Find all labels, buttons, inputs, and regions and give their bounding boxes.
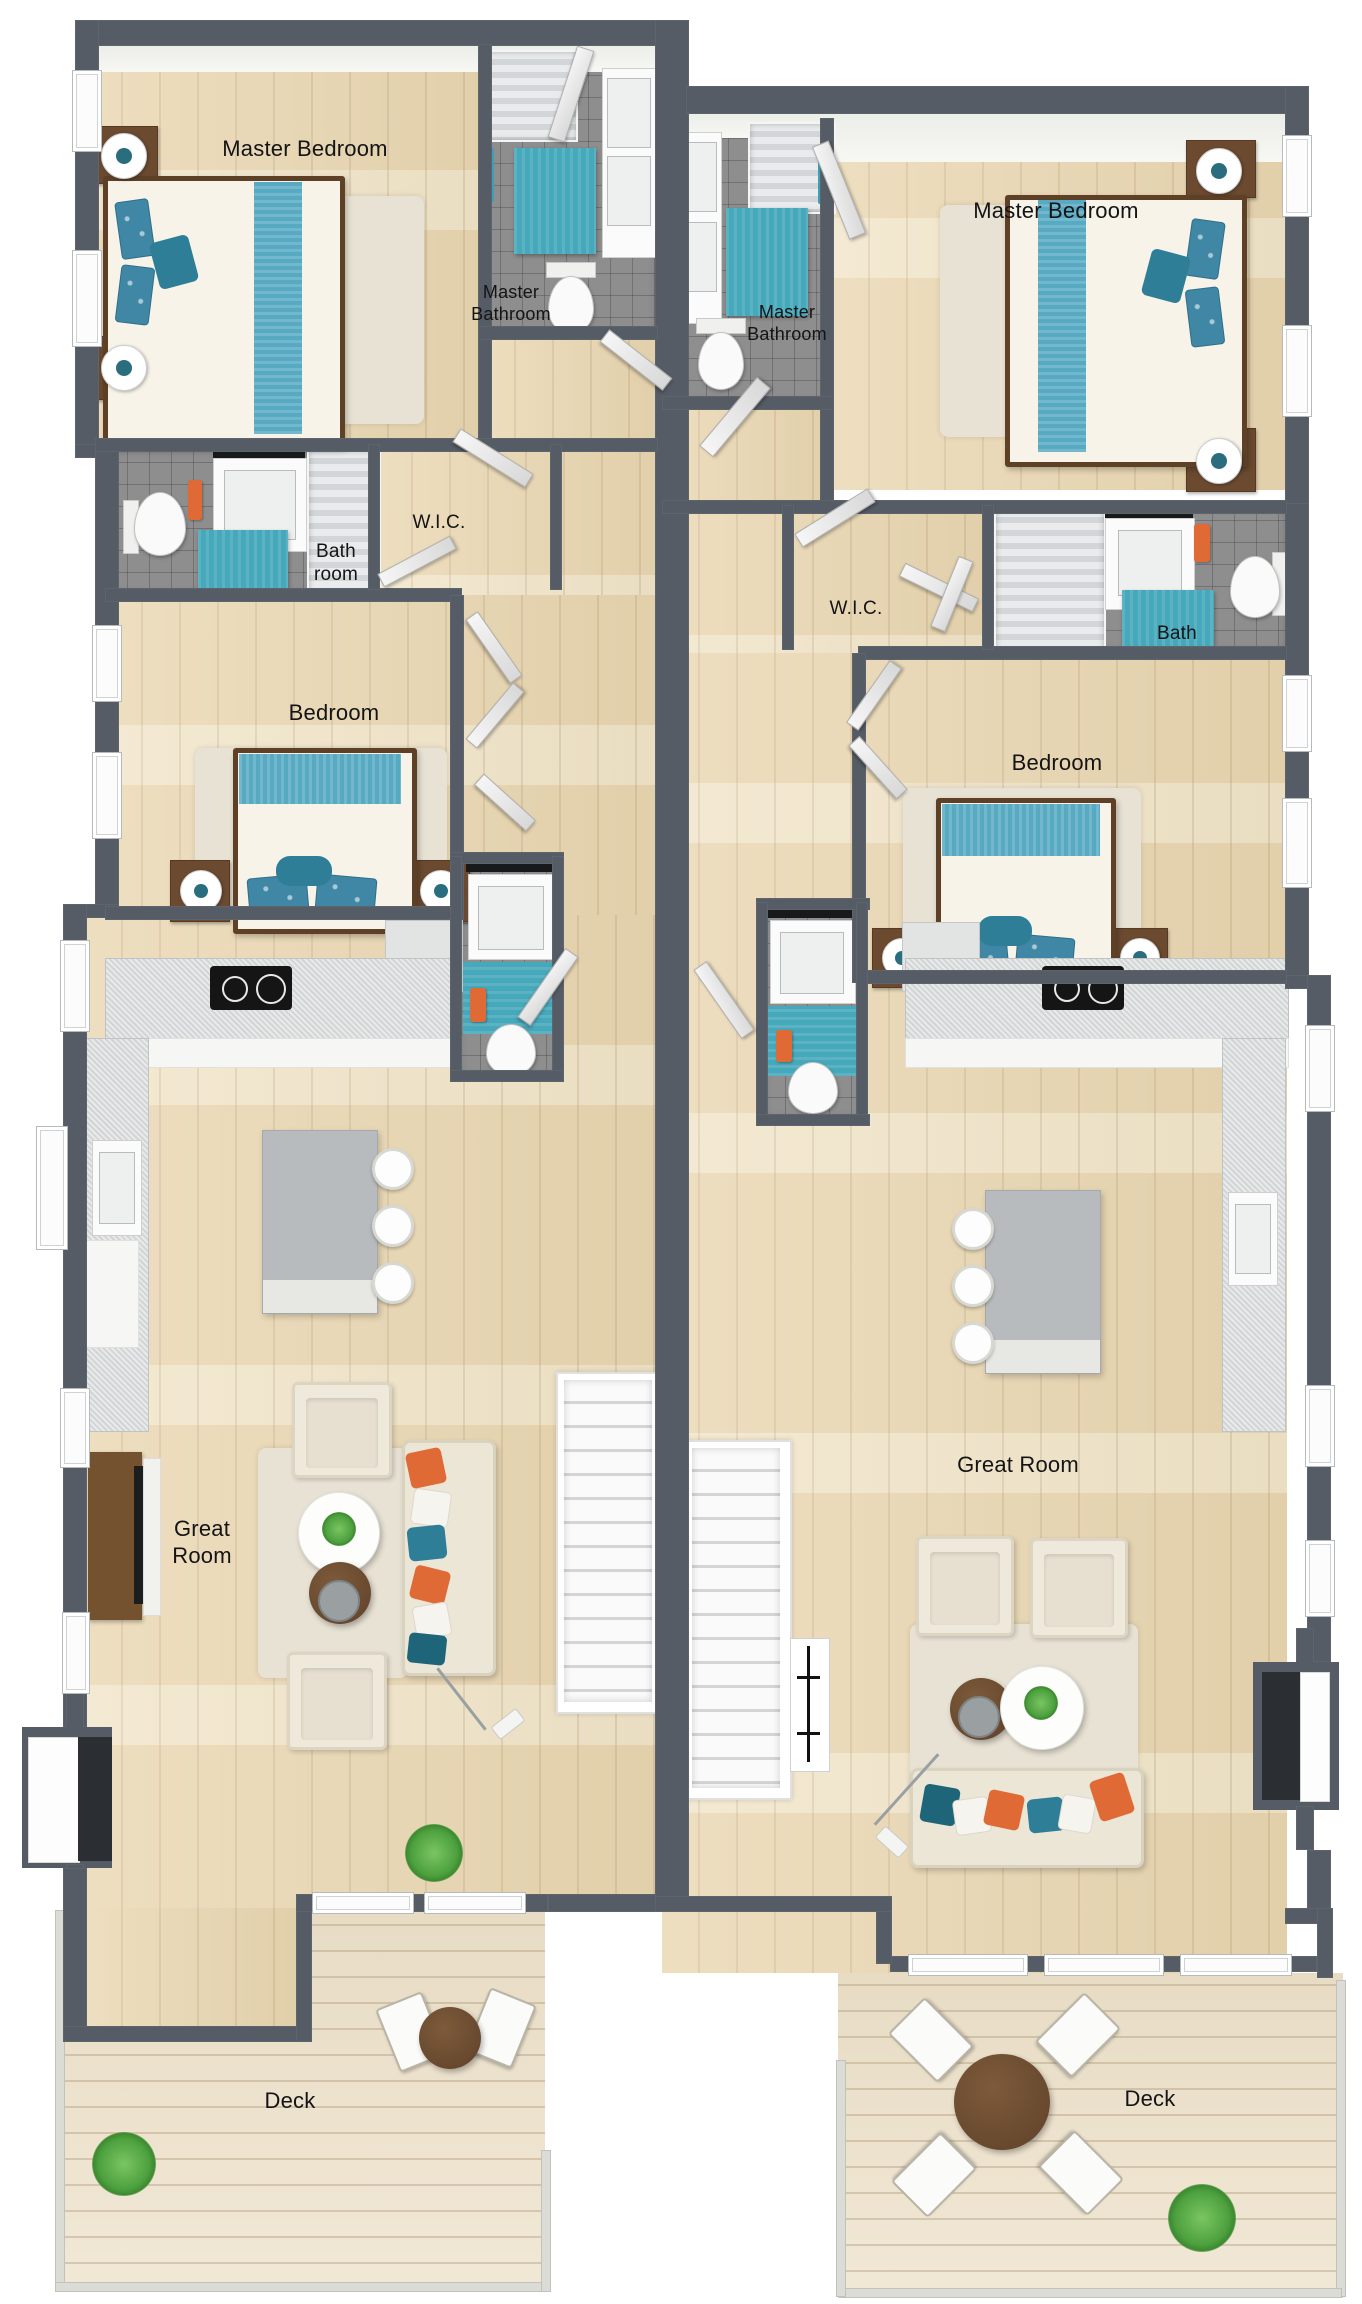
armchair <box>1030 1538 1128 1638</box>
bar-stool <box>952 1265 994 1307</box>
radiator-glyph <box>797 1676 820 1679</box>
window <box>72 70 102 152</box>
wall <box>66 1690 84 1730</box>
room-label-deck-left: Deck <box>240 2088 340 2115</box>
kitchen-island <box>985 1190 1101 1374</box>
tray <box>958 1696 1000 1738</box>
wall <box>105 906 460 920</box>
toilet <box>486 1024 536 1076</box>
deck-railing <box>840 2288 1342 2298</box>
toilet <box>788 1062 838 1114</box>
bar-stool <box>952 1322 994 1364</box>
bay-window-cavity <box>1262 1672 1302 1800</box>
room-label-wic-left: W.I.C. <box>394 511 484 534</box>
burner <box>256 974 286 1004</box>
window <box>424 1892 526 1914</box>
stair-treads <box>692 1448 780 1788</box>
bar-stool <box>952 1208 994 1250</box>
room-label-master-bathroom-right: Master Bathroom <box>730 302 844 346</box>
wall <box>756 898 870 910</box>
room-label-bath-room-left: Bath room <box>296 540 376 586</box>
bar-stool <box>372 1148 414 1190</box>
room-label-deck-right: Deck <box>1100 2086 1200 2113</box>
window <box>62 1612 90 1694</box>
tray <box>318 1580 360 1622</box>
wall <box>548 1894 658 1912</box>
towel <box>1194 524 1210 562</box>
sink <box>607 156 651 226</box>
toilet <box>134 492 186 556</box>
stair-treads <box>564 1380 652 1702</box>
pillow <box>406 1524 447 1562</box>
sink <box>478 886 544 950</box>
window <box>1305 1540 1335 1617</box>
deck-railing <box>1336 1980 1346 2297</box>
room-label-master-bathroom-left: Master Bathroom <box>455 282 567 326</box>
bay-window-cavity <box>78 1737 112 1861</box>
kitchen-cabinet <box>105 1038 459 1068</box>
floor-plan: Master Bedroom Master Bathroom Bath room… <box>0 0 1362 2304</box>
deck-railing <box>836 2060 846 2297</box>
window <box>60 1388 90 1468</box>
wall <box>296 1898 312 2042</box>
towel <box>470 988 486 1022</box>
wall <box>982 505 994 650</box>
window <box>92 752 122 839</box>
room-label-bedroom-right: Bedroom <box>977 750 1137 777</box>
pillow <box>1057 1793 1097 1834</box>
wall <box>662 500 1287 514</box>
room-label-great-room-left: Great Room <box>146 1516 258 1570</box>
wall <box>686 86 1287 114</box>
wall <box>450 856 462 1082</box>
window <box>60 940 90 1032</box>
tv-screen <box>134 1466 143 1604</box>
toilet <box>1230 556 1280 618</box>
wall <box>478 44 492 446</box>
sink <box>1118 530 1182 596</box>
radiator <box>790 1638 830 1772</box>
window <box>92 625 122 702</box>
radiator-glyph <box>797 1732 820 1735</box>
armchair <box>292 1382 392 1478</box>
armchair <box>916 1536 1014 1636</box>
bay-window-glass <box>28 1737 80 1863</box>
wall <box>1317 1908 1333 1978</box>
wall <box>856 902 868 1126</box>
bed-runner <box>254 182 302 434</box>
wall <box>782 505 794 650</box>
plant <box>322 1512 356 1546</box>
bed-runner <box>239 754 401 804</box>
sink <box>1235 1204 1271 1274</box>
table-lamp <box>1196 438 1242 484</box>
burner <box>222 976 248 1002</box>
shower <box>994 508 1106 654</box>
towel <box>188 480 202 520</box>
wall <box>105 588 462 602</box>
window <box>1282 798 1312 888</box>
sink <box>607 78 651 148</box>
wall <box>756 902 768 1126</box>
plant <box>1024 1686 1058 1720</box>
room-label-bath-right: Bath <box>1132 622 1222 645</box>
pillow <box>405 1447 448 1490</box>
pillow <box>1185 286 1226 348</box>
bath-rug <box>198 530 288 588</box>
window <box>1305 1025 1335 1112</box>
table-lamp <box>101 133 147 179</box>
party-wall <box>655 20 689 1912</box>
room-label-bedroom-left: Bedroom <box>254 700 414 727</box>
pillow <box>410 1488 453 1529</box>
room-label-wic-right: W.I.C. <box>811 597 901 620</box>
pillow <box>276 856 332 886</box>
window <box>36 1126 68 1250</box>
deck-railing <box>55 2282 551 2292</box>
window <box>908 1954 1028 1976</box>
bar-stool <box>372 1205 414 1247</box>
window <box>1282 325 1312 417</box>
wall <box>1296 1806 1314 1850</box>
room-label-master-bedroom-right: Master Bedroom <box>946 198 1166 225</box>
wall <box>756 1114 870 1126</box>
window <box>1282 135 1312 217</box>
window <box>1044 1954 1164 1976</box>
table-lamp <box>1196 148 1242 194</box>
wall <box>858 970 1287 984</box>
bed-runner <box>1038 200 1086 452</box>
wall <box>63 1868 87 2040</box>
wall <box>95 20 660 46</box>
pillow <box>983 1789 1026 1832</box>
rug <box>332 196 424 424</box>
window <box>1305 1385 1335 1467</box>
deck-table <box>954 2054 1050 2150</box>
bath-rug <box>726 208 808 316</box>
table-lamp <box>101 345 147 391</box>
pillow <box>978 916 1032 946</box>
towel <box>776 1030 792 1062</box>
wall <box>450 852 564 864</box>
wall <box>450 1070 564 1082</box>
bar-stool <box>372 1262 414 1304</box>
pillow <box>115 264 156 326</box>
wood-floor <box>85 1908 300 2033</box>
wall <box>655 1896 892 1912</box>
plant <box>405 1824 463 1882</box>
radiator-glyph <box>807 1646 810 1762</box>
bath-rug <box>514 148 596 254</box>
window <box>1282 675 1312 752</box>
window <box>1180 1954 1292 1976</box>
sink <box>780 932 844 994</box>
bay-window-glass <box>1300 1672 1330 1802</box>
plant <box>92 2132 156 2196</box>
wall <box>478 326 658 340</box>
sink <box>99 1152 135 1224</box>
window <box>72 250 102 347</box>
wall <box>63 2026 310 2042</box>
deck-table <box>419 2007 481 2069</box>
pillow <box>407 1632 448 1666</box>
deck-railing <box>541 2150 551 2292</box>
wall <box>858 646 1287 660</box>
room-label-master-bedroom-left: Master Bedroom <box>195 136 415 163</box>
plant <box>1168 2184 1236 2252</box>
bed-runner <box>942 804 1100 856</box>
wall <box>550 444 562 590</box>
room-label-great-room-right: Great Room <box>908 1452 1128 1479</box>
armchair <box>287 1652 387 1750</box>
window <box>312 1892 414 1914</box>
kitchen-island <box>262 1130 378 1314</box>
